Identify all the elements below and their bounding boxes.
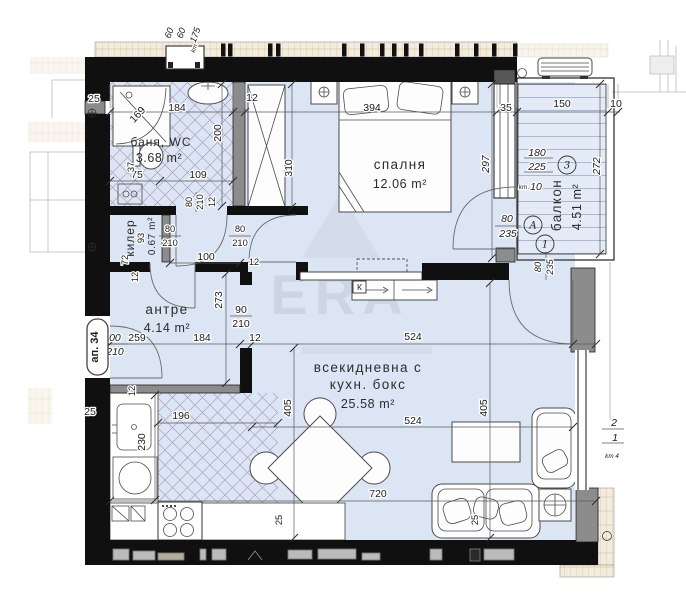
level-bottom: 1	[612, 432, 618, 444]
dim-balcony-10: 10	[610, 98, 622, 110]
balcony-equipment	[518, 58, 593, 79]
dim-balcony-225: 225	[527, 161, 546, 173]
dim-living-720: 720	[369, 488, 387, 500]
room-name-closet: килер	[123, 219, 137, 256]
level-top: 2	[610, 417, 617, 429]
dim-beddoor-210: 210	[232, 238, 248, 248]
bedroom-furniture	[248, 80, 478, 212]
dim-off-25a: 25	[274, 515, 284, 525]
dim-wall-12: 12	[246, 92, 258, 104]
dim-top-175: 175	[188, 25, 203, 44]
dim-balcony-180: 180	[528, 147, 546, 159]
room-name-living-2: кухн. бокс	[330, 377, 407, 392]
dim-door-235: 235	[498, 228, 517, 240]
dim-bath-200: 200	[212, 124, 224, 142]
dim-bathdoor-210: 210	[195, 194, 205, 210]
dim-balcdoor-235: 235	[545, 258, 555, 275]
dim-bed-394: 394	[363, 102, 381, 114]
living-window	[575, 350, 589, 490]
dim-balcdoor-80: 80	[533, 261, 543, 272]
dim-bath-109: 109	[189, 169, 207, 181]
dim-top-60b: 60	[175, 26, 188, 40]
room-name-bathroom: баня, WC	[130, 135, 191, 149]
room-area-bedroom: 12.06 m²	[373, 177, 427, 191]
room-name-balcony: балкон	[549, 179, 564, 231]
dim-wall-25: 25	[88, 93, 100, 105]
dim-closet-93: 93	[136, 233, 146, 243]
dim-bedroom-297: 297	[480, 154, 492, 174]
kitchen-k-label: К	[357, 282, 362, 292]
dim-window-35: 35	[500, 102, 512, 114]
dim-wall-12d: 12	[249, 332, 261, 344]
level-unit: km 4	[605, 453, 619, 460]
dim-wall-12e: 12	[127, 386, 137, 396]
window-number: 3	[564, 161, 570, 172]
dim-balcony-272: 272	[591, 157, 603, 176]
watermark-subtext-bar	[302, 346, 432, 354]
dim-wardrobe-310: 310	[283, 159, 295, 177]
dim-living-405r: 405	[478, 399, 490, 417]
dim-balcony-parapet-10: 10	[530, 181, 542, 193]
dim-bath-184: 184	[168, 102, 186, 114]
dim-livdoor-210: 210	[232, 318, 250, 330]
dim-bathdoor-80: 80	[184, 197, 194, 207]
dim-living-405l: 405	[282, 399, 294, 417]
door-number: 1	[542, 240, 548, 251]
dim-living-524a: 524	[404, 331, 422, 343]
dim-wall-12b: 12	[207, 197, 217, 207]
apartment-badge: ап. 34	[87, 319, 108, 375]
dim-closet-wall-12: 12	[130, 272, 140, 282]
floor-plan-page: ERA	[0, 0, 686, 600]
room-area-living: 25.58 m²	[341, 397, 395, 411]
stove	[158, 502, 202, 540]
dim-livdoor-90: 90	[235, 304, 247, 316]
dim-closetdoor-210: 210	[162, 238, 178, 248]
room-name-bedroom: спалня	[374, 157, 427, 172]
dim-bath-37: 37	[126, 162, 136, 172]
apartment-number: ап. 34	[89, 331, 101, 363]
door-letter: А	[528, 221, 537, 232]
room-area-hall: 4.14 m²	[144, 321, 191, 335]
wall-bedroom-living	[422, 263, 509, 280]
room-name-living-1: всекидневна с	[314, 360, 422, 375]
dim-beddoor-80: 80	[235, 224, 245, 234]
wall-top	[95, 57, 517, 82]
dim-corridor-100: 100	[197, 251, 215, 263]
dim-balcony-150: 150	[553, 98, 571, 110]
wall-thin-bedroom-living	[300, 272, 422, 280]
dim-wall-25b: 25	[84, 406, 96, 418]
dim-balcony-km: km	[519, 184, 527, 191]
dim-kitchen-230: 230	[136, 433, 148, 451]
dim-kitchen-196: 196	[172, 410, 190, 422]
dim-closetdoor-80: 80	[165, 224, 175, 234]
dim-wall-12c: 12	[249, 257, 259, 267]
coffee-table	[452, 422, 520, 462]
wall-bath-bedroom	[233, 82, 245, 206]
bed	[339, 80, 451, 212]
floor-plan-canvas: ERA	[0, 0, 686, 600]
pillar-southeast	[576, 488, 598, 542]
room-name-hall: антре	[145, 302, 188, 317]
dim-hall-184: 184	[193, 332, 211, 344]
dim-top-60a: 60	[163, 26, 176, 40]
room-area-balcony: 4.51 m²	[570, 184, 584, 231]
dim-off-25b: 25	[470, 515, 480, 525]
room-area-closet: 0.67 m²	[147, 217, 158, 255]
room-area-bathroom: 3.68 m²	[136, 151, 183, 165]
dim-hall-273: 273	[213, 291, 225, 309]
dim-living-524b: 524	[404, 415, 422, 427]
wall-living-east	[571, 268, 595, 352]
dim-door-80: 80	[501, 213, 513, 225]
